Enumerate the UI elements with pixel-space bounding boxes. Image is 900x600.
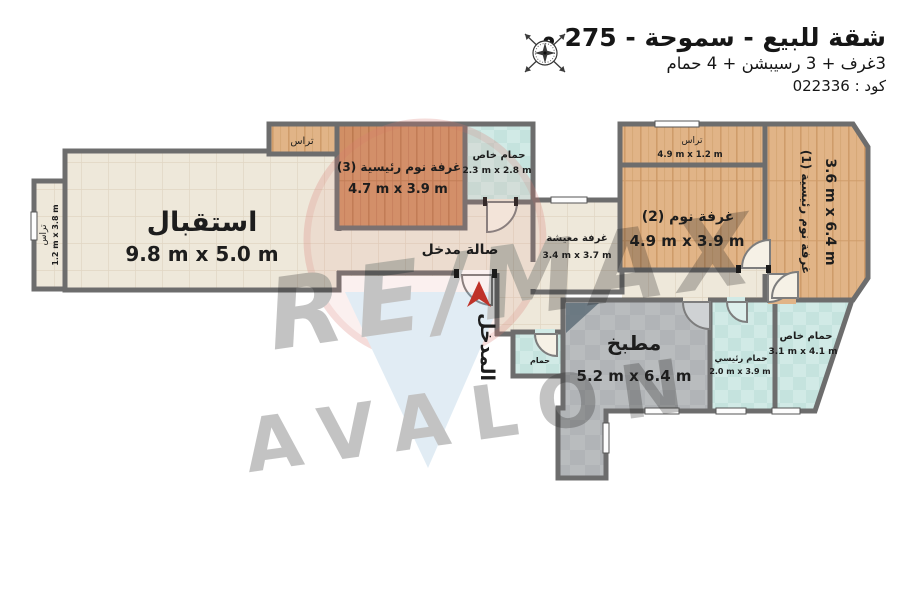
terrace-left-label: تراس — [39, 224, 49, 245]
floorplan-page: شقة للبيع - سموحة - 275 م 3غرف + 3 رسيبش… — [0, 0, 900, 600]
bath3-label: حمام خاص — [473, 150, 526, 161]
terrace-left-dims: 1.2 m x 3.8 m — [51, 204, 60, 265]
floorplan-drawing: RE/MAX AVALON استقبال 9.8 m x 5.0 m تراس… — [0, 0, 900, 600]
kitchen-label: مطبخ — [607, 331, 661, 355]
reception-label: استقبال — [147, 207, 258, 238]
bedroom1-dims: 3.6 m x 6.4 m — [822, 158, 838, 265]
bedroom3-dims: 4.7 m x 3.9 m — [348, 182, 448, 197]
bath-private-dims: 3.1 m x 4.1 m — [769, 347, 838, 357]
bedroom1-label: غرفة نوم رئيسية (1) — [798, 150, 813, 274]
entrance-label: المدخل — [476, 313, 498, 381]
hall-label: صالة مدخل — [422, 242, 499, 258]
bath-master-dims: 2.0 m x 3.9 m — [709, 367, 770, 376]
terrace-right-dims: 4.9 m x 1.2 m — [657, 150, 722, 160]
bath-private-label: حمام خاص — [780, 331, 833, 342]
living-dims: 3.4 m x 3.7 m — [543, 251, 612, 261]
bedroom3-label: غرفة نوم رئيسية (3) — [337, 160, 461, 175]
bath-small-label: حمام — [530, 356, 550, 365]
bath3-dims: 2.3 m x 2.8 m — [463, 166, 532, 176]
living-label: غرفة معيشة — [546, 233, 607, 244]
terrace-top-label: تراس — [290, 136, 314, 147]
reception-dims: 9.8 m x 5.0 m — [125, 242, 278, 266]
bedroom2-label: غرفة نوم (2) — [642, 209, 735, 225]
bath-master-label: حمام رئيسي — [714, 354, 767, 364]
terrace-right-label: تراس — [682, 136, 703, 146]
kitchen-dims: 5.2 m x 6.4 m — [577, 367, 692, 385]
bedroom2-dims: 4.9 m x 3.9 m — [630, 232, 745, 250]
